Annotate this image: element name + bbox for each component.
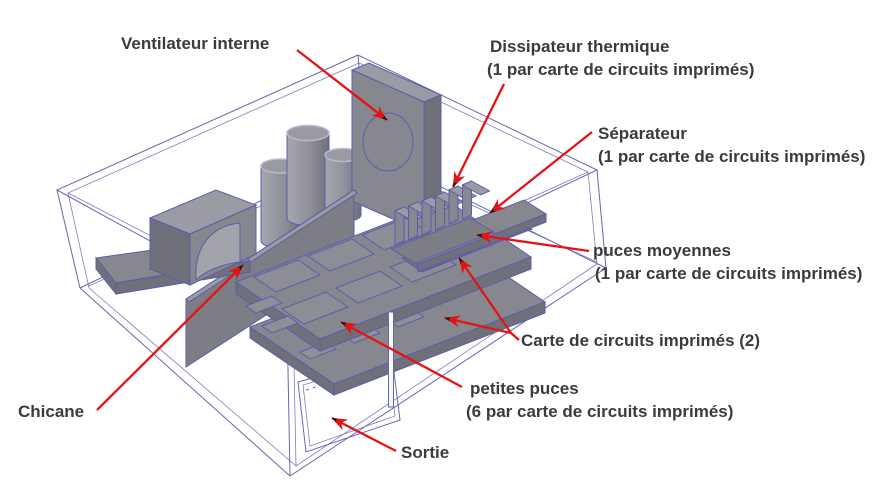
label-medium-chips-1: puces moyennes — [593, 241, 731, 260]
label-medium-chips-2: (1 par carte de circuits imprimés) — [595, 264, 862, 283]
label-fan: Ventilateur interne — [121, 34, 269, 53]
label-heatsink-2: (1 par carte de circuits imprimés) — [487, 60, 754, 79]
label-pcb: Carte de circuits imprimés (2) — [521, 331, 760, 350]
arrow-pcb-stub — [511, 333, 519, 340]
label-separator-1: Séparateur — [598, 124, 687, 143]
support-post — [389, 312, 394, 407]
diagram-page: Ventilateur interne Dissipateur thermiqu… — [0, 0, 889, 488]
label-heatsink-1: Dissipateur thermique — [490, 37, 670, 56]
label-small-chips-2: (6 par carte de circuits imprimés) — [466, 402, 733, 421]
arrow-heatsink — [453, 84, 504, 187]
arrow-separator — [490, 132, 592, 213]
capacitor-cylinder-1-top — [287, 126, 329, 141]
label-baffle: Chicane — [18, 402, 84, 421]
label-small-chips-1: petites puces — [470, 379, 579, 398]
diagram-canvas: Ventilateur interne Dissipateur thermiqu… — [0, 0, 889, 488]
label-outlet: Sortie — [401, 443, 449, 462]
label-separator-2: (1 par carte de circuits imprimés) — [598, 147, 865, 166]
